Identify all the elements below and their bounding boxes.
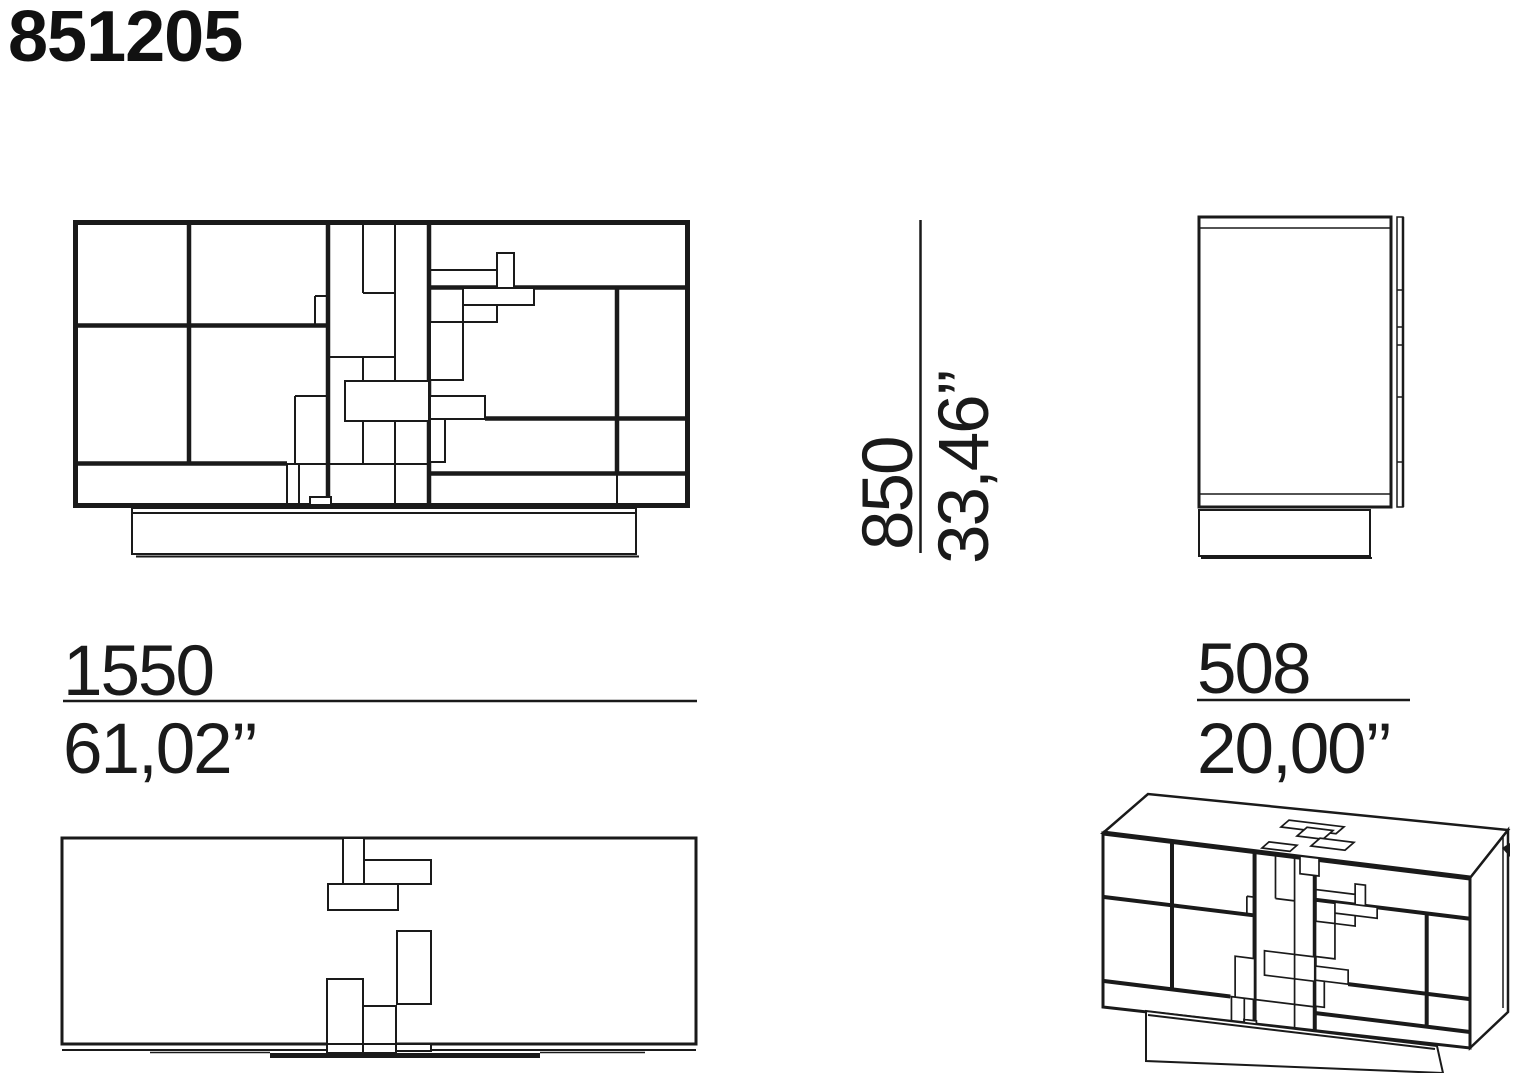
front-view <box>75 222 688 557</box>
side-panel-lines <box>1199 228 1391 494</box>
perspective-view <box>1103 794 1510 1073</box>
height-dimension-inches: 33,46’’ <box>925 370 1004 564</box>
top-pattern-blocks <box>327 838 431 1053</box>
side-plinth <box>1199 510 1372 558</box>
front-plinth <box>132 508 639 557</box>
depth-dimension-mm: 508 <box>1197 630 1309 709</box>
iso-top-block <box>1300 856 1319 876</box>
top-view <box>62 838 696 1056</box>
height-dimension-mm: 850 <box>849 438 928 550</box>
side-view <box>1199 217 1403 558</box>
width-dimension-mm: 1550 <box>63 632 213 711</box>
side-body-outline <box>1199 217 1391 507</box>
depth-dimension-inches: 20,00’’ <box>1197 710 1391 789</box>
width-dimension-inches: 61,02’’ <box>63 710 257 789</box>
technical-drawing-page: 851205 <box>0 0 1514 1073</box>
drawing-canvas: 1550 61,02’’ 508 20,00’’ 850 33,46’’ <box>0 0 1514 1073</box>
front-pattern-blocks <box>310 253 534 505</box>
